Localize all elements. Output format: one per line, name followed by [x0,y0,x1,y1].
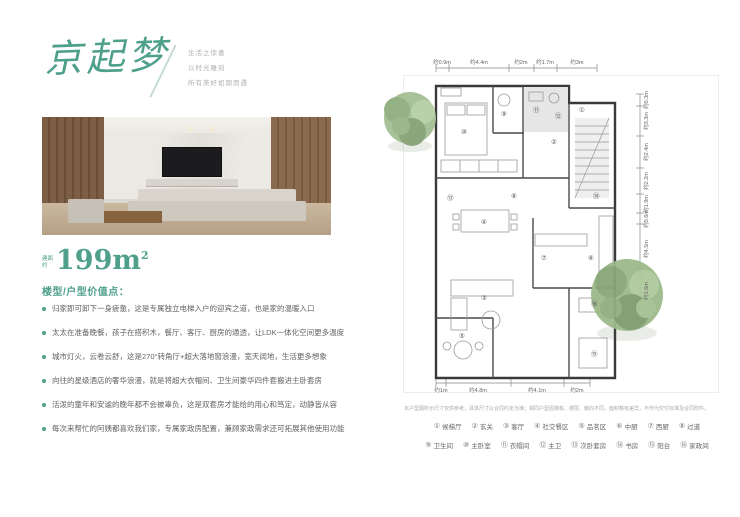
legend-label: 主卧室 [471,440,491,450]
section-heading: 楼型/户型价值点： [42,283,129,298]
dim-label: 约3m [562,58,592,66]
bullet-dot-icon [42,427,46,431]
legend-item: ⑩主卧室 [463,440,491,450]
brand-tagline: 生活之惊喜 以时光雕刻 所有美好如期而遇 [188,46,248,91]
room-mark: ③ [481,296,487,302]
dim-label: 约4.4m [464,58,494,66]
legend-num: ② [472,422,478,430]
dim-label: 约4.8m [463,386,493,394]
plan-legend: ①候梯厅 ②玄关 ③客厅 ④社交餐区 ⑤品茗区 ⑥中厨 ⑦西厨 ⑧过道 ⑨卫生间… [404,421,730,459]
list-item: 城市灯火，云卷云舒，这是270°转角厅+超大落地窗浪漫，宽天阔地，生活更多想象 [42,352,352,361]
legend-label: 候梯厅 [442,421,462,431]
legend-label: 过道 [687,421,700,431]
dim-label: 约3.3m [642,106,650,136]
photo-ceiling-light [210,127,213,130]
room-mark: ⑯ [591,302,598,308]
legend-row: ⑨卫生间 ⑩主卧室 ⑪衣帽间 ⑫主卫 ⑬次卧套房 ⑭书房 ⑮阳台 ⑯家政间 [404,440,730,450]
legend-num: ⑫ [539,440,546,450]
legend-item: ⑤品茗区 [579,421,607,431]
legend-num: ⑮ [648,440,655,450]
room-mark: ⑬ [447,196,454,202]
room-mark: ⑧ [511,194,517,200]
bullet-dot-icon [42,403,46,407]
dim-label: 约2.4m [642,137,650,167]
legend-item: ⑫主卫 [539,440,561,450]
brand-logo: 京起梦 [43,36,170,78]
photo-tv-console [146,179,238,187]
legend-label: 卫生间 [434,440,454,450]
value-points-list: 归家即可卸下一身疲惫，这是专属独立电梯入户的迎宾之道，也是家的温暖入口 太太在准… [42,304,352,448]
legend-label: 中厨 [625,421,638,431]
legend-num: ① [434,422,440,430]
area-superscript: 2 [141,249,149,262]
legend-label: 次卧套房 [580,440,606,450]
legend-item: ⑥中厨 [616,421,637,431]
room-mark: ① [579,108,585,114]
legend-num: ③ [503,422,509,430]
plan-disclaimer: 本户型图所示尺寸仅供参考，具体尺寸以合同约定为准；相同户型因楼栋、楼层、朝向不同… [404,405,730,412]
legend-num: ④ [534,422,540,430]
bullet-dot-icon [42,331,46,335]
legend-item: ⑭书房 [616,440,638,450]
interior-photo [42,117,331,235]
dim-label: 约0.9m [427,58,457,66]
list-item: 活泼的童年和安谧的晚年都不会被辜负，这是双套房才能给的用心和笃定，动静皆从容 [42,400,352,409]
legend-num: ⑨ [425,441,431,449]
room-mark: ⑪ [533,108,540,114]
legend-item: ⑯家政间 [680,440,709,450]
floor-plan-drawing [383,48,733,406]
legend-item: ⑧过道 [679,421,700,431]
tagline-line: 生活之惊喜 [188,46,248,61]
legend-num: ⑯ [680,440,687,450]
bullet-text: 太太在准备晚餐，孩子在搭积木，餐厅、客厅、厨房的通透，让LDK一体化空间更多温度 [52,328,344,337]
tree [384,92,436,152]
tagline-line: 所有美好如期而遇 [188,76,248,91]
area-value: 199m [56,247,141,274]
floor-plan: 约0.9m 约4.4m 约2m 约1.7m 约3m 约0.3m 约3.3m 约2… [383,48,733,406]
legend-item: ⑮阳台 [648,440,670,450]
legend-item: ⑦西厨 [648,421,669,431]
dim-label: 约2m [562,386,592,394]
bullet-text: 向往的星级酒店的奢华浪漫，就是将超大衣帽间、卫生间豪华四件套搬进主卧套房 [52,376,322,385]
legend-num: ⑥ [616,422,622,430]
legend-label: 玄关 [480,421,493,431]
dim-label: 约4.5m [642,234,650,264]
list-item: 归家即可卸下一身疲惫，这是专属独立电梯入户的迎宾之道，也是家的温暖入口 [42,304,352,313]
list-item: 太太在准备晚餐，孩子在搭积木，餐厅、客厅、厨房的通透，让LDK一体化空间更多温度 [42,328,352,337]
legend-label: 阳台 [657,440,670,450]
room-mark: ② [551,140,557,146]
bullet-text: 城市灯火，云卷云舒，这是270°转角厅+超大落地窗浪漫，宽天阔地，生活更多想象 [52,352,327,361]
legend-item: ②玄关 [472,421,493,431]
dim-label: 约4.1m [522,386,552,394]
room-mark: ⑤ [459,334,465,340]
legend-item: ⑪衣帽间 [501,440,530,450]
brochure-page: 京起梦 生活之惊喜 以时光雕刻 所有美好如期而遇 建面约 199m 2 楼型/户… [0,0,740,517]
room-mark: ⑮ [591,352,598,358]
room-mark: ⑦ [541,256,547,262]
dim-label: 约1.6m [642,276,650,306]
legend-label: 品茗区 [587,421,607,431]
room-mark: ⑨ [501,112,507,118]
legend-num: ⑬ [571,440,578,450]
bullet-dot-icon [42,307,46,311]
legend-label: 社交餐区 [543,421,569,431]
list-item: 每次来帮忙的阿姨都喜欢我们家，专属家政房配置，兼顾家政需求还可拓展其他使用功能 [42,424,352,433]
legend-num: ⑪ [501,440,508,450]
legend-label: 西厨 [656,421,669,431]
room-mark: ⑥ [588,256,594,262]
bullet-dot-icon [42,355,46,359]
photo-tv [162,147,222,177]
legend-item: ③客厅 [503,421,524,431]
legend-num: ⑭ [616,440,623,450]
legend-row: ①候梯厅 ②玄关 ③客厅 ④社交餐区 ⑤品茗区 ⑥中厨 ⑦西厨 ⑧过道 [404,421,730,431]
photo-armchair [68,199,104,223]
photo-wood-panel-left [42,117,104,209]
legend-label: 主卫 [548,440,561,450]
area-prefix: 建面约 [42,256,54,270]
room-mark: ④ [481,220,487,226]
tree [591,259,663,341]
room-mark: ⑫ [555,114,562,120]
legend-num: ⑧ [679,422,685,430]
legend-num: ⑤ [579,422,585,430]
legend-label: 书房 [625,440,638,450]
dim-label: 约0.6m [642,204,650,234]
floor-area: 建面约 199m 2 [42,247,149,274]
photo-ceiling-light [190,127,193,130]
legend-num: ⑦ [648,422,654,430]
bullet-text: 每次来帮忙的阿姨都喜欢我们家，专属家政房配置，兼顾家政需求还可拓展其他使用功能 [52,424,345,433]
legend-item: ⑨卫生间 [425,440,453,450]
photo-coffee-table [104,211,162,223]
tagline-line: 以时光雕刻 [188,61,248,76]
dim-label: 约1m [426,386,456,394]
list-item: 向往的星级酒店的奢华浪漫，就是将超大衣帽间、卫生间豪华四件套搬进主卧套房 [42,376,352,385]
dim-label: 约1.7m [530,58,560,66]
legend-item: ①候梯厅 [434,421,462,431]
legend-label: 衣帽间 [510,440,530,450]
legend-item: ④社交餐区 [534,421,568,431]
legend-label: 客厅 [511,421,524,431]
bullet-text: 归家即可卸下一身疲惫，这是专属独立电梯入户的迎宾之道，也是家的温暖入口 [52,304,315,313]
bullet-dot-icon [42,379,46,383]
room-mark: ⑭ [593,194,600,200]
room-mark: ⑩ [461,130,467,136]
legend-num: ⑩ [463,441,469,449]
legend-label: 家政间 [689,440,709,450]
bullet-text: 活泼的童年和安谧的晚年都不会被辜负，这是双套房才能给的用心和笃定，动静皆从容 [52,400,337,409]
legend-item: ⑬次卧套房 [571,440,606,450]
